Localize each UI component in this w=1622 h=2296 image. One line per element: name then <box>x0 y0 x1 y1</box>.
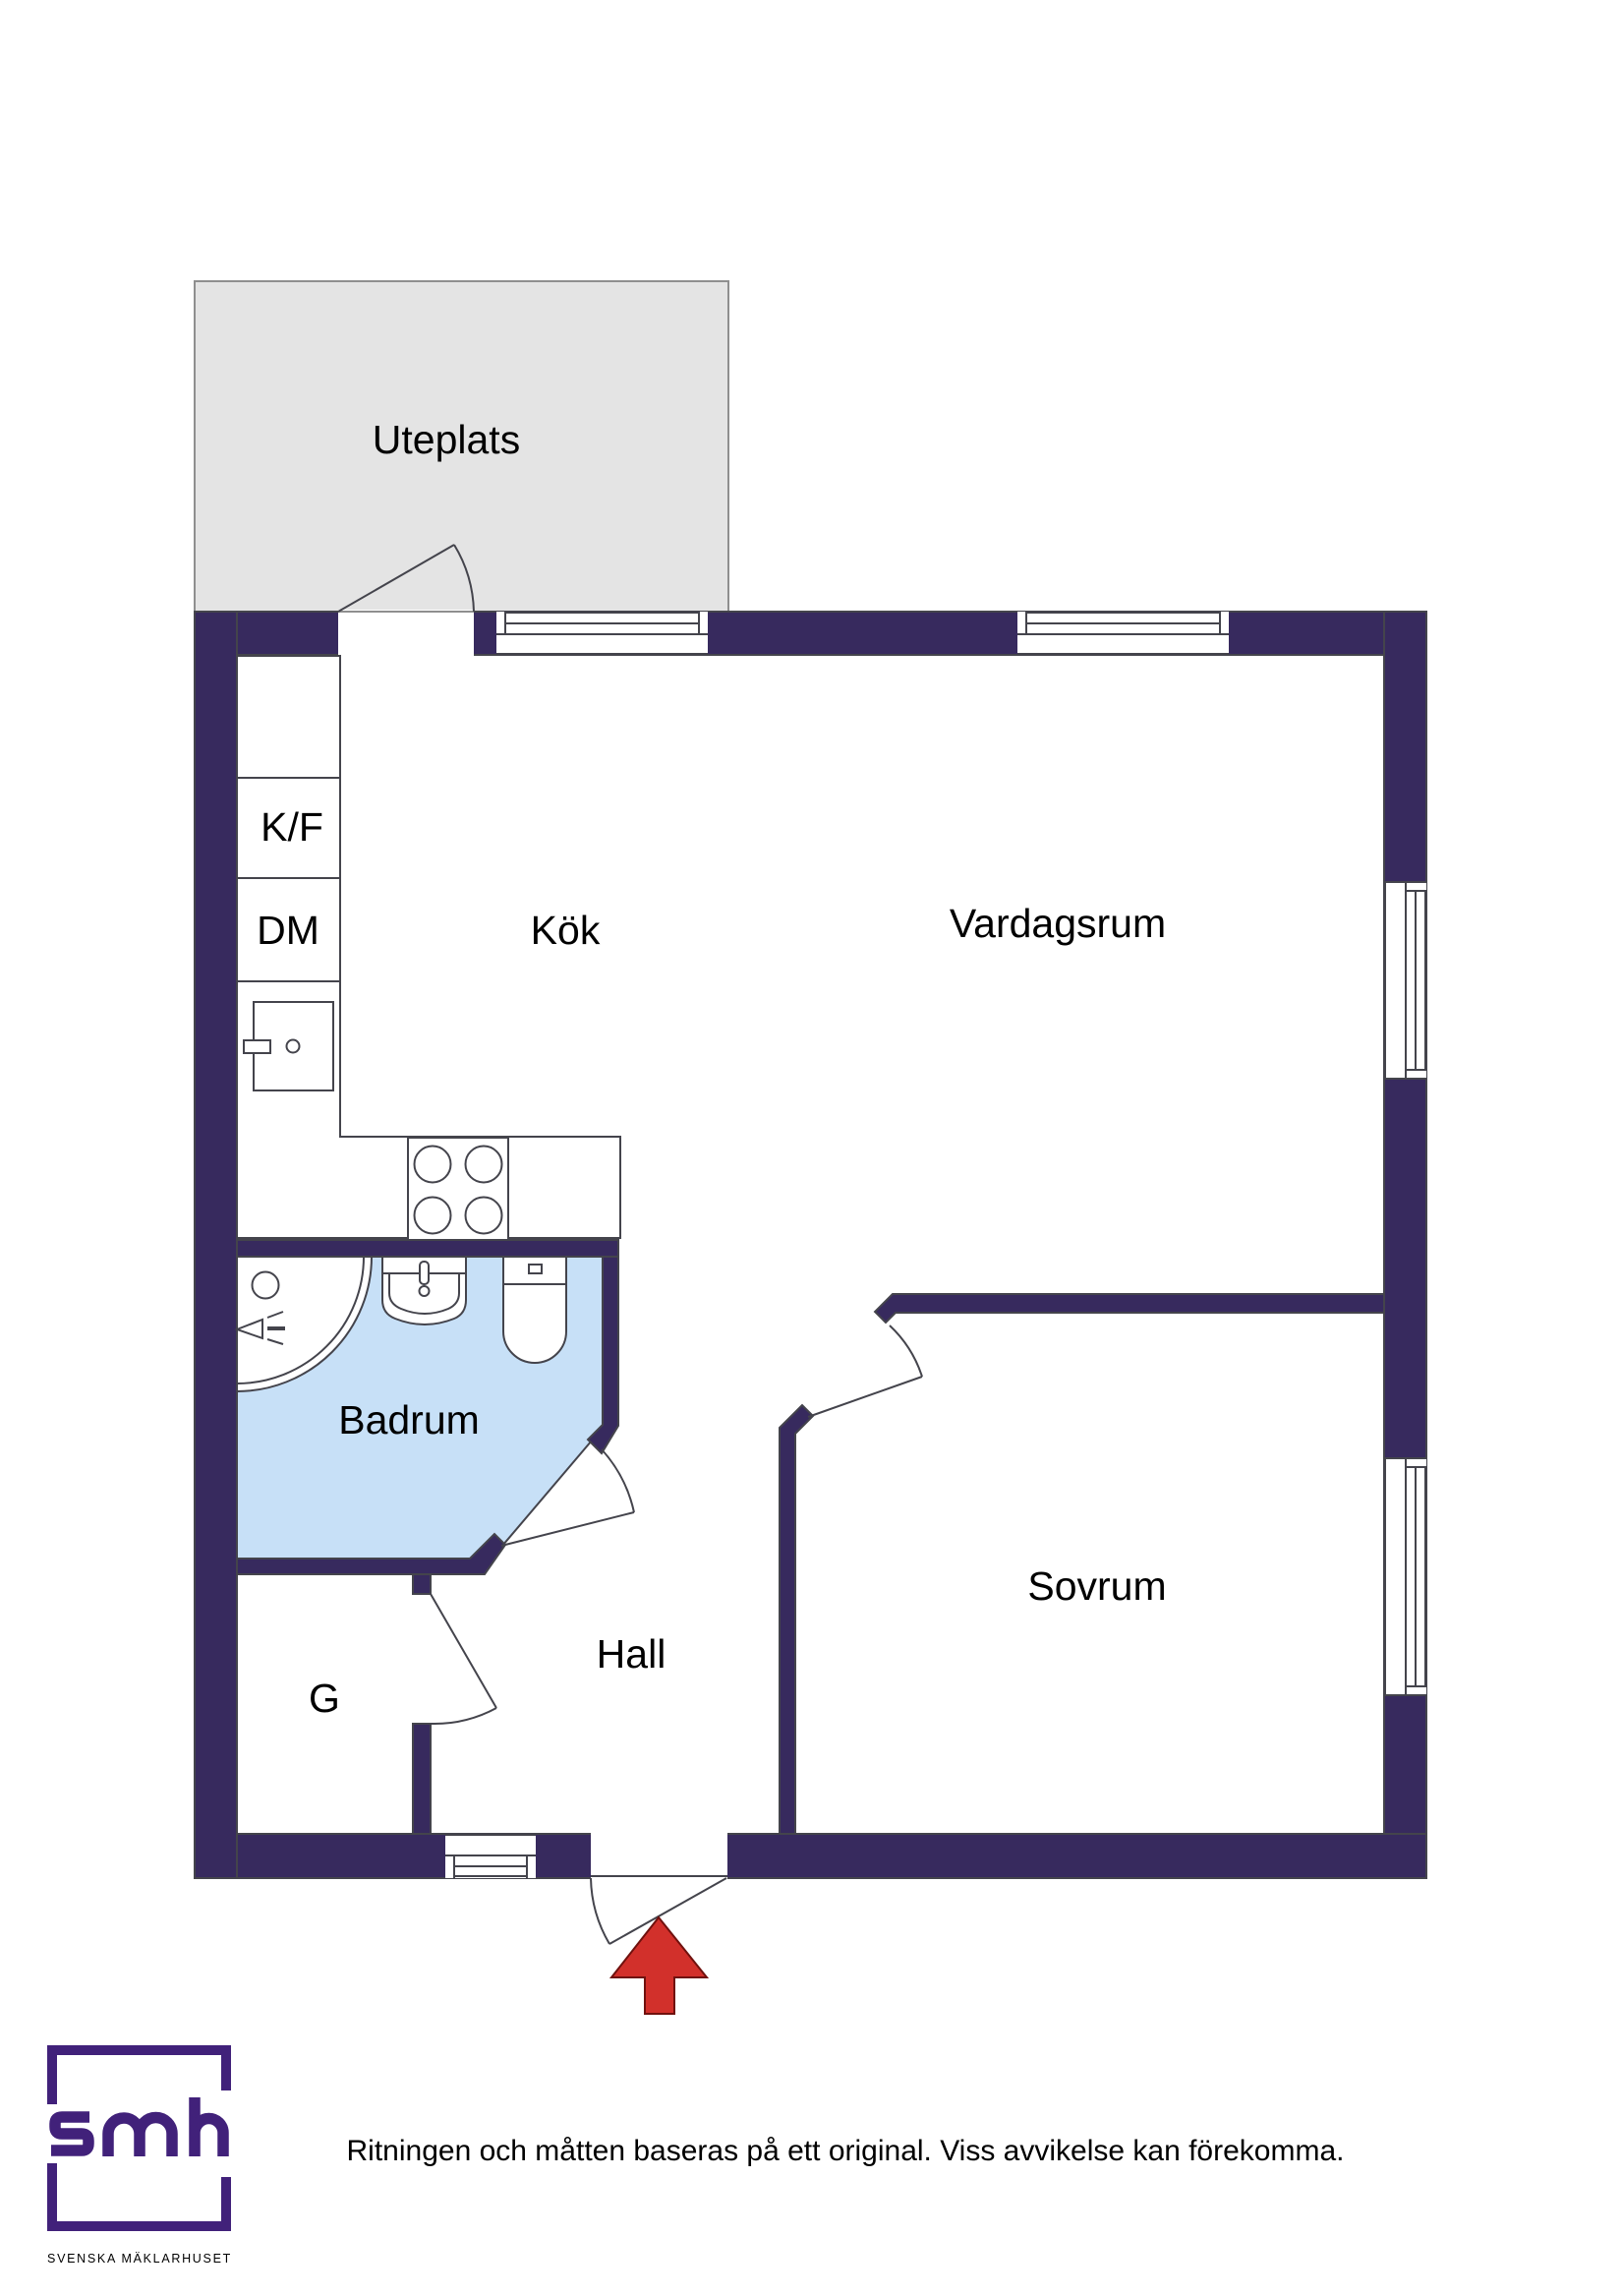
svg-text:Vardagsrum: Vardagsrum <box>950 901 1166 946</box>
svg-text:Uteplats: Uteplats <box>373 417 520 462</box>
svg-text:SVENSKA MÄKLARHUSET: SVENSKA MÄKLARHUSET <box>47 2252 232 2266</box>
svg-text:Badrum: Badrum <box>338 1397 480 1442</box>
svg-text:K/F: K/F <box>261 804 323 850</box>
svg-text:Ritningen och måtten baseras p: Ritningen och måtten baseras på ett orig… <box>347 2135 1345 2167</box>
svg-text:Sovrum: Sovrum <box>1027 1563 1166 1609</box>
svg-text:Hall: Hall <box>597 1631 666 1677</box>
svg-text:Kök: Kök <box>531 908 601 953</box>
svg-text:DM: DM <box>257 908 319 953</box>
svg-text:G: G <box>309 1676 340 1721</box>
